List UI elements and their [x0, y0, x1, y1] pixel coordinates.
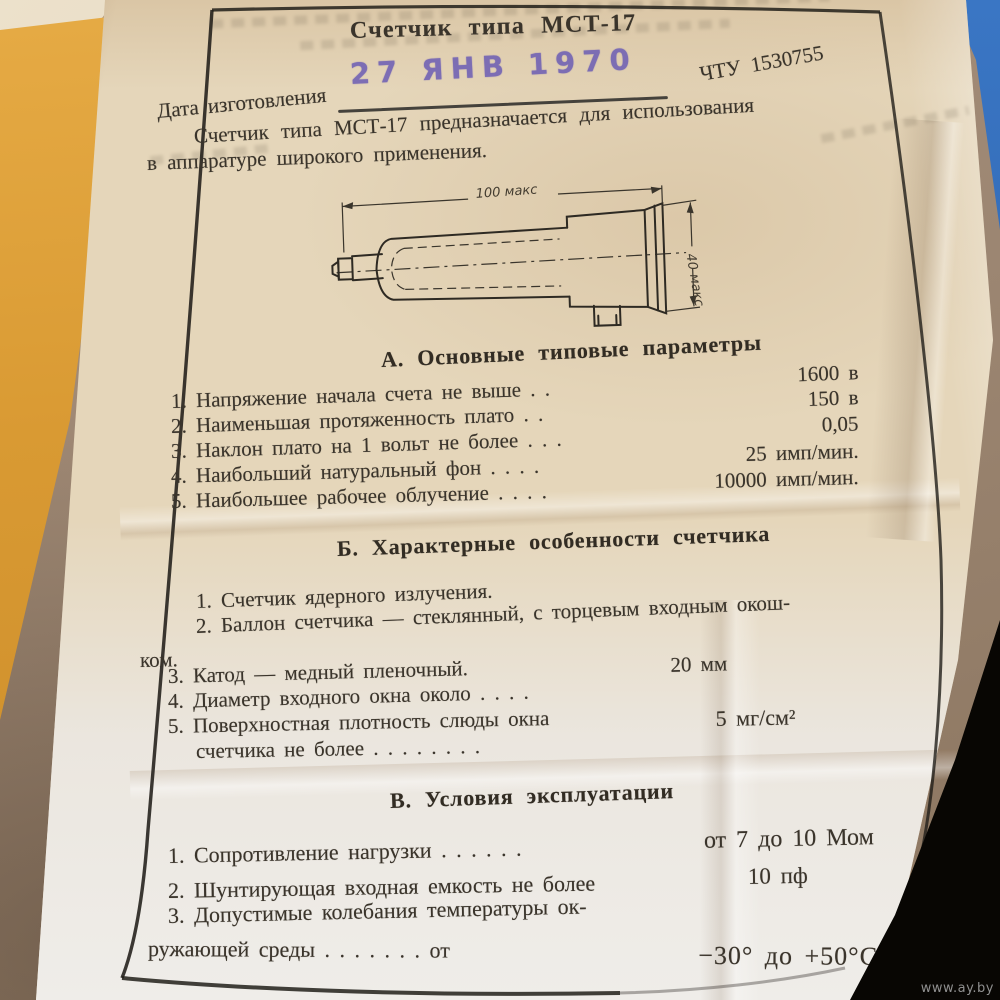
photo-of-document: Счетчик типа МСТ-17 27 ЯНВ 1970 ЧТУ 1530…	[0, 0, 1000, 1000]
watermark-text: www.ay.by	[921, 981, 994, 996]
feature-label: счетчика не более . . . . . . . .	[196, 734, 480, 765]
drawing-flange	[644, 203, 666, 314]
condition-row: ружающей среды . . . . . . . от −30° до …	[148, 936, 878, 970]
drawing-dim-diameter-label: 40 макс	[682, 252, 706, 307]
condition-value: от 7 до 10 Мом	[692, 824, 874, 855]
drawing-dim-length-label: 100 макс	[475, 183, 538, 202]
drawing-centerline	[336, 253, 686, 273]
param-value: 0,05	[809, 411, 859, 438]
drawing-cylinder	[375, 228, 569, 304]
drawing-cathode	[391, 239, 562, 292]
feature-value: 20 мм	[658, 651, 727, 678]
drawing-envelope-step	[567, 210, 648, 310]
condition-value: 10 пф	[736, 863, 808, 890]
condition-label: ружающей среды . . . . . . . от	[148, 936, 450, 968]
feature-value: 5 мг/см²	[703, 705, 795, 733]
drawing-side-contact	[594, 305, 621, 326]
condition-value: −30° до +50°С	[686, 941, 878, 972]
param-value: 150 в	[795, 385, 858, 412]
drawing-pin-base	[338, 258, 353, 279]
tube-technical-drawing: 100 макс 40 макс	[327, 163, 733, 342]
param-value: 10000 имп/мин.	[702, 465, 859, 494]
param-value: 1600 в	[785, 360, 859, 387]
param-value: 25 имп/мин.	[733, 439, 859, 467]
